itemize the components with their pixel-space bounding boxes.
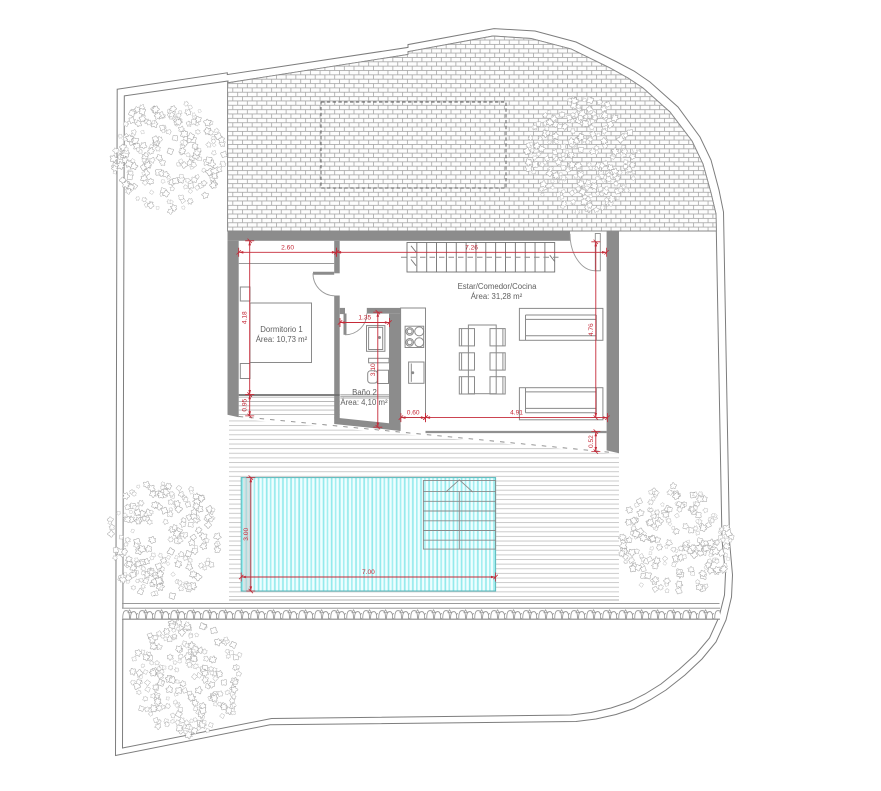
svg-text:Estar/Comedor/Cocina: Estar/Comedor/Cocina — [458, 282, 538, 291]
svg-text:0.60: 0.60 — [407, 410, 420, 417]
svg-text:4.18: 4.18 — [242, 311, 249, 324]
svg-text:Área: 4,10 m²: Área: 4,10 m² — [340, 398, 388, 407]
svg-text:3.00: 3.00 — [243, 528, 250, 541]
svg-text:0.52: 0.52 — [588, 435, 595, 448]
svg-text:Dormitorio 1: Dormitorio 1 — [260, 325, 302, 334]
svg-text:Baño 2: Baño 2 — [352, 388, 377, 397]
svg-text:1.35: 1.35 — [358, 315, 371, 322]
svg-text:7.26: 7.26 — [465, 244, 478, 251]
svg-text:3.10: 3.10 — [370, 363, 377, 376]
svg-text:0.95: 0.95 — [242, 399, 249, 412]
svg-text:2.60: 2.60 — [281, 244, 294, 251]
svg-text:4.76: 4.76 — [588, 323, 595, 336]
svg-text:4.91: 4.91 — [510, 410, 523, 417]
svg-text:Área: 10,73 m²: Área: 10,73 m² — [256, 335, 308, 344]
svg-text:7.00: 7.00 — [362, 569, 375, 576]
svg-text:Área: 31,28 m²: Área: 31,28 m² — [471, 292, 523, 301]
